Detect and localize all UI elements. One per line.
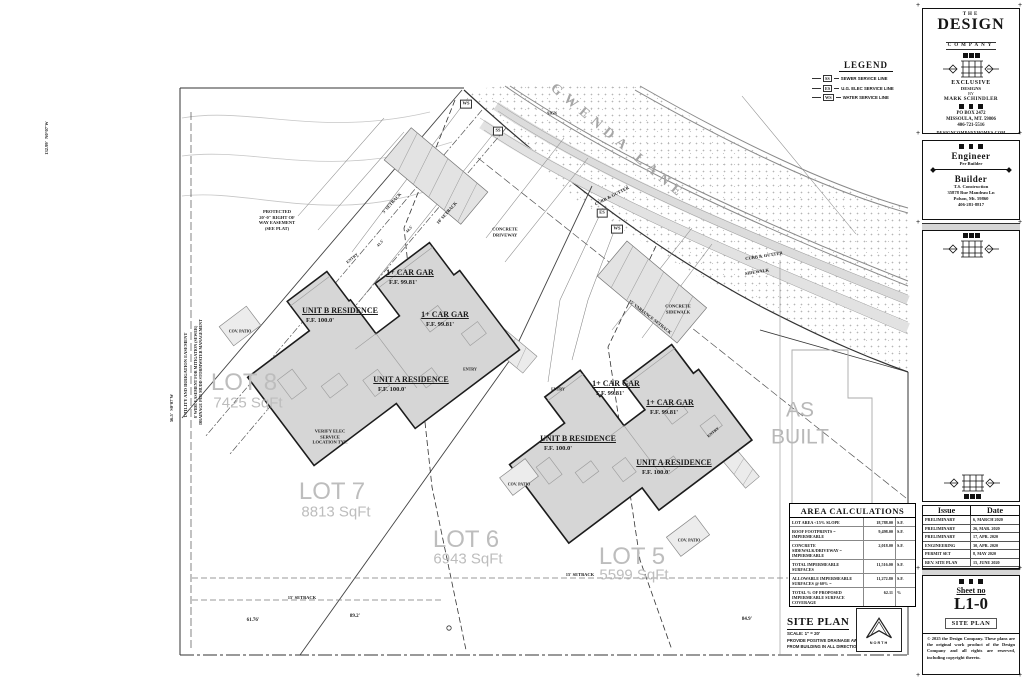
legend-item: ES U.G. ELEC SERVICE LINE xyxy=(812,85,920,92)
register-tick: + xyxy=(1018,130,1022,137)
concrete-driveway-label: CONCRETE DRIVEWAY xyxy=(492,226,518,237)
area-calculations-table: AREA CALCULATIONS LOT AREA <15% SLOPE 18… xyxy=(789,503,916,607)
firm-name: DESIGN xyxy=(923,17,1019,33)
unit-b-left-ff: F.F. 100.0' xyxy=(306,317,334,325)
easement-note-2: 8' WIDE EASEMENT FOR MITIGATION (SEWER) … xyxy=(193,319,203,424)
legend-items: SS SEWER SERVICE LINE ES U.G. ELEC SERVI… xyxy=(812,75,920,101)
issue-table-row: PRELIMINARY 26, MAR. 2020 xyxy=(923,525,1019,534)
area-row-value: 9,498.00 xyxy=(864,527,896,540)
unit-a-left-label: UNIT A RESIDENCE xyxy=(373,375,448,385)
squares-divider-icon xyxy=(923,104,1019,109)
area-row-value: 11,272.80 xyxy=(864,574,896,587)
issue-table-header: Issue Date xyxy=(923,506,1019,516)
lot-7-label: LOT 7 xyxy=(299,477,365,507)
legend-line-icon xyxy=(836,97,841,98)
area-row-label: LOT AREA <15% SLOPE xyxy=(790,518,864,526)
legend-line-icon xyxy=(812,88,821,89)
legend-tag: SS xyxy=(823,75,832,82)
site-plan-sheet: GWENDA LANELOT 87425 SqFtLOT 78813 SqFtL… xyxy=(0,0,1024,683)
garage-1-left-label: 1+ CAR GAR xyxy=(386,268,434,278)
area-row-value: 18,788.00 xyxy=(864,518,896,526)
engineer-note: Per Builder xyxy=(923,161,1019,166)
register-tick: + xyxy=(916,219,920,226)
sheet-number: L1-0 xyxy=(923,595,1019,613)
firm-website: DESIGNCOMPANYHOMES.COM xyxy=(923,130,1019,135)
entry-label-3: ENTRY xyxy=(551,387,565,392)
legend-tag: ES xyxy=(823,85,832,92)
legend-item: SS SEWER SERVICE LINE xyxy=(812,75,920,82)
marker-es: ES xyxy=(597,209,608,218)
setback-15-label-2: 15' SETBACK xyxy=(288,595,316,601)
marker-ws-2: WS xyxy=(611,225,623,234)
north-arrow-icon xyxy=(863,616,895,640)
marker-ss: SS xyxy=(493,127,503,136)
garage-2-left-ff: F.F. 99.81' xyxy=(426,321,454,329)
unit-a-right-ff: F.F. 100.0' xyxy=(642,469,670,477)
right-of-way-note: PROTECTED 20'-0" RIGHT OF WAY EASEMENT (… xyxy=(259,209,295,232)
register-tick: + xyxy=(916,672,920,679)
project-ornament-icon xyxy=(944,473,1000,499)
issue-col-header: Issue xyxy=(923,506,971,515)
legend-line-icon xyxy=(834,78,839,79)
area-row-unit: % xyxy=(896,588,911,606)
dim-56-5: 56.5' S0°07'W xyxy=(169,394,175,422)
area-table-row: TOTAL IMPERMEABLE SURFACES 11,516.00 S.F… xyxy=(790,560,915,574)
sidewalk-label: SIDEWALK xyxy=(745,267,770,276)
north-arrow: NORTH xyxy=(856,608,902,652)
marker-ws-1: WS xyxy=(460,100,472,109)
garage-2-right-label: 1+ CAR GAR xyxy=(646,398,694,408)
legend-line-icon xyxy=(834,88,839,89)
issue-table-row: PRELIMINARY 17, APR. 2020 xyxy=(923,533,1019,542)
lot-5-area: 5599 SqFt xyxy=(599,567,668,586)
title-block-strip: THE DESIGN COMPANY EXCLUSIVE DESIGNS BY … xyxy=(920,0,1024,683)
legend-item-label: SEWER SERVICE LINE xyxy=(841,76,888,81)
garage-1-left-ff: F.F. 99.81' xyxy=(389,279,417,287)
legend-item: WS WATER SERVICE LINE xyxy=(812,94,920,101)
area-table-row: ROOF FOOTPRINTS = IMPERMEABLE 9,498.00 S… xyxy=(790,527,915,541)
register-tick: + xyxy=(916,130,920,137)
project-block xyxy=(922,230,1020,502)
area-row-value: 2,018.00 xyxy=(864,541,896,559)
verify-elec-note: VERIFY ELEC SERVICE LOCATION TYP. xyxy=(313,429,348,446)
issue-cell: PERMIT SET xyxy=(923,550,971,558)
entry-label-4: ENTRY xyxy=(706,426,720,439)
lot-8-label: LOT 8 xyxy=(211,368,277,398)
setback-15-label-1: 15' SETBACK xyxy=(566,572,594,578)
issue-cell: PRELIMINARY xyxy=(923,533,971,541)
register-tick: + xyxy=(1018,672,1022,679)
area-table-title: AREA CALCULATIONS xyxy=(790,504,915,518)
garage-2-left-label: 1+ CAR GAR xyxy=(421,310,469,320)
legend-item-label: WATER SERVICE LINE xyxy=(843,95,889,100)
area-table-rows: LOT AREA <15% SLOPE 18,788.00 S.F. ROOF … xyxy=(790,518,915,606)
register-tick: + xyxy=(1018,565,1022,572)
area-row-unit: S.F. xyxy=(896,527,911,540)
area-row-label: ROOF FOOTPRINTS = IMPERMEABLE xyxy=(790,527,864,540)
sign-label: SIGN xyxy=(547,111,557,116)
area-row-unit: S.F. xyxy=(896,518,911,526)
area-row-unit: S.F. xyxy=(896,560,911,573)
issue-cell: PRELIMINARY xyxy=(923,516,971,524)
issue-cell: ENGINEERING xyxy=(923,542,971,550)
firm-block: THE DESIGN COMPANY EXCLUSIVE DESIGNS BY … xyxy=(922,8,1020,134)
curb-gutter-label-1: CURB & GUTTER xyxy=(594,185,630,207)
area-row-value: 62.11 xyxy=(864,588,896,606)
legend-tag: WS xyxy=(823,94,834,101)
north-label: NORTH xyxy=(870,641,889,645)
date-col-header: Date xyxy=(971,506,1019,515)
garage-2-right-ff: F.F. 99.81' xyxy=(650,409,678,417)
issue-table-row: ENGINEERING 30, APR. 2020 xyxy=(923,542,1019,551)
date-cell: 6, MARCH 2020 xyxy=(971,516,1019,524)
cov-patio-label-2: COV. PATIO xyxy=(508,482,530,487)
dim-44-5: 44.5' xyxy=(404,224,413,233)
firm-company: COMPANY xyxy=(946,42,997,50)
legend: LEGEND SS SEWER SERVICE LINE ES U.G. ELE… xyxy=(812,60,920,104)
register-tick: + xyxy=(1018,219,1022,226)
firm-phone: 406-721-5516 xyxy=(923,123,1019,129)
squares-divider-icon xyxy=(923,579,1019,584)
area-row-label: ALLOWABLE IMPERMEABLE SURFACES @ 60% = xyxy=(790,574,864,587)
drainage-note: PROVIDE POSITIVE DRAINAGE AWAY FROM BUIL… xyxy=(787,638,857,649)
date-cell: 17, APR. 2020 xyxy=(971,533,1019,541)
sheet-block: Sheet no L1-0 SITE PLAN © 2025 the Desig… xyxy=(922,575,1020,675)
drawing-scale: SCALE: 1" = 20' xyxy=(787,631,857,636)
dim-84-9: 84.9' xyxy=(742,617,752,623)
dim-89-2: 89.2' xyxy=(350,614,360,620)
project-ornament-icon xyxy=(943,233,999,259)
lot-7-area: 8813 SqFt xyxy=(301,504,370,523)
as-built-label: AS BUILT xyxy=(771,397,829,452)
legend-line-icon xyxy=(812,78,821,79)
area-row-label: TOTAL % OF PROPOSED IMPERMEABLE SURFACE … xyxy=(790,588,864,606)
unit-a-left-ff: F.F. 100.0' xyxy=(378,386,406,394)
date-cell: 26, MAR. 2020 xyxy=(971,525,1019,533)
issue-table-row: PRELIMINARY 6, MARCH 2020 xyxy=(923,516,1019,525)
engineer-heading: Engineer xyxy=(923,151,1019,161)
area-row-value: 11,516.00 xyxy=(864,560,896,573)
lot-6-area: 6943 SqFt xyxy=(433,551,502,570)
register-tick: + xyxy=(1018,2,1022,9)
drawing-title-block: SITE PLAN SCALE: 1" = 20' PROVIDE POSITI… xyxy=(787,612,857,649)
date-cell: 8, MAY 2020 xyxy=(971,550,1019,558)
area-table-row: ALLOWABLE IMPERMEABLE SURFACES @ 60% = 1… xyxy=(790,574,915,588)
issue-table-row: PERMIT SET 8, MAY 2020 xyxy=(923,550,1019,559)
date-cell: 15, JUNE 2020 xyxy=(971,559,1019,567)
register-tick: + xyxy=(916,2,920,9)
curb-gutter-label-2: CURB & GUTTER xyxy=(745,250,783,261)
firm-ornament-icon xyxy=(943,53,999,79)
concrete-sidewalk-label: CONCRETE SIDEWALK xyxy=(665,303,691,314)
firm-designer-name: MARK SCHINDLER xyxy=(923,96,1019,102)
squares-divider-icon xyxy=(923,144,1019,149)
legend-line-icon xyxy=(812,97,821,98)
unit-b-right-label: UNIT B RESIDENCE xyxy=(540,434,616,444)
dim-132-99: 132.99' N0°07'W xyxy=(44,121,50,154)
cov-patio-label-1: COV. PATIO xyxy=(229,329,251,334)
copyright-note: © 2025 the Design Company. These plans a… xyxy=(923,633,1019,660)
area-table-row: LOT AREA <15% SLOPE 18,788.00 S.F. xyxy=(790,518,915,527)
garage-1-right-label: 1+ CAR GAR xyxy=(592,379,640,389)
legend-title: LEGEND xyxy=(839,60,893,72)
area-table-row: TOTAL % OF PROPOSED IMPERMEABLE SURFACE … xyxy=(790,588,915,606)
sheet-name: SITE PLAN xyxy=(945,618,998,629)
register-tick: + xyxy=(916,565,920,572)
issue-cell: PRELIMINARY xyxy=(923,525,971,533)
setback-5-label: 5' SETBACK xyxy=(381,191,403,214)
engineer-builder-block: Engineer Per Builder Builder T.S. Constr… xyxy=(922,140,1020,220)
dim-41-5: 41.5' xyxy=(375,238,384,247)
area-table-row: CONCRETE SIDEWALK/DRIVEWAY = IMPERMEABLE… xyxy=(790,541,915,560)
date-cell: 30, APR. 2020 xyxy=(971,542,1019,550)
legend-item-label: U.G. ELEC SERVICE LINE xyxy=(841,86,893,91)
divider-icon xyxy=(931,168,1011,172)
easement-note-1: UTILITY AND IRRIGATION EASEMENT xyxy=(183,333,189,418)
area-row-unit: S.F. xyxy=(896,574,911,587)
unit-a-right-label: UNIT A RESIDENCE xyxy=(636,458,711,468)
issue-table: Issue Date PRELIMINARY 6, MARCH 2020 PRE… xyxy=(922,505,1020,569)
drawing-title: SITE PLAN xyxy=(787,616,849,630)
issue-table-row: REV. SITE PLAN 15, JUNE 2020 xyxy=(923,559,1019,568)
area-row-label: CONCRETE SIDEWALK/DRIVEWAY = IMPERMEABLE xyxy=(790,541,864,559)
entry-label-1: ENTRY xyxy=(345,252,359,265)
cov-patio-label-3: COV. PATIO xyxy=(678,538,700,543)
dim-61-76: 61.76' xyxy=(247,618,260,624)
lot-8-area: 7425 SqFt xyxy=(213,395,282,414)
unit-b-right-ff: F.F. 100.0' xyxy=(544,445,572,453)
builder-heading: Builder xyxy=(923,174,1019,184)
issue-table-rows: PRELIMINARY 6, MARCH 2020 PRELIMINARY 26… xyxy=(923,516,1019,567)
issue-cell: REV. SITE PLAN xyxy=(923,559,971,567)
area-row-label: TOTAL IMPERMEABLE SURFACES xyxy=(790,560,864,573)
garage-1-right-ff: F.F. 99.81' xyxy=(596,390,624,398)
setback-10-label: 10' SETBACK xyxy=(435,201,458,226)
builder-phone: 406-281-8817 xyxy=(923,202,1019,208)
area-row-unit: S.F. xyxy=(896,541,911,559)
unit-b-left-label: UNIT B RESIDENCE xyxy=(302,306,378,316)
street-name-label: GWENDA LANE xyxy=(546,80,689,204)
entry-label-2: ENTRY xyxy=(463,367,477,372)
